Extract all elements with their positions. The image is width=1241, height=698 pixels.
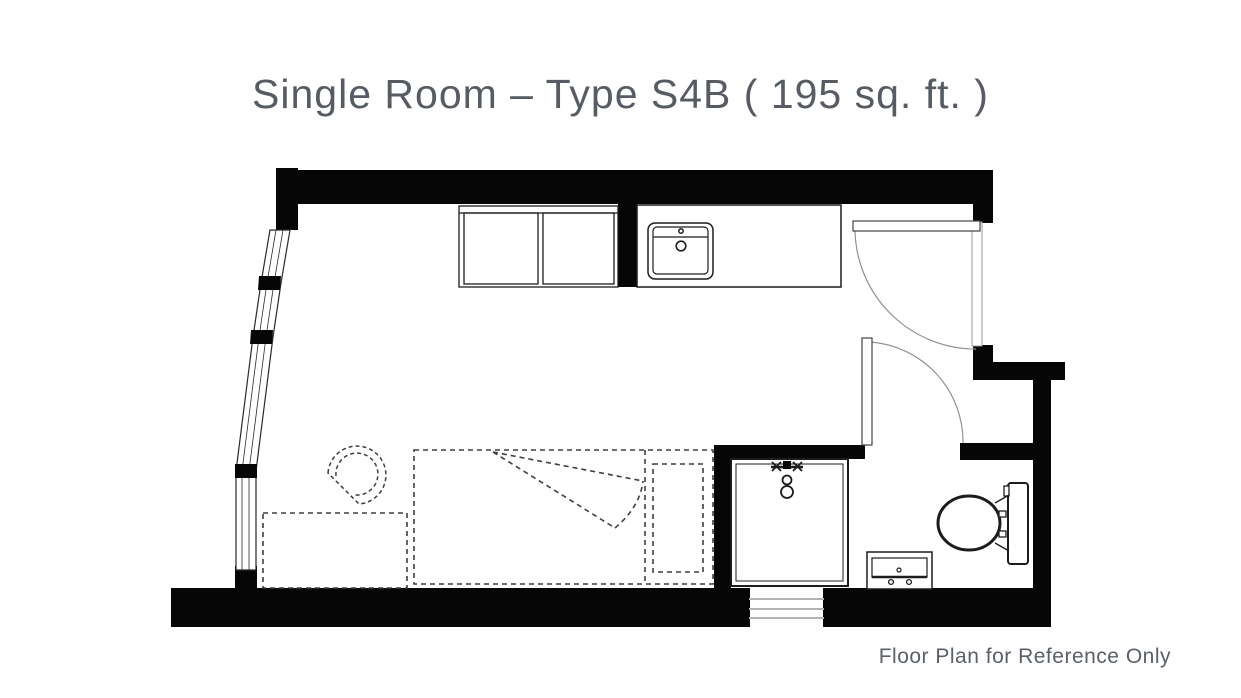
entry-steps [749, 599, 824, 618]
bathroom-wall-left [714, 459, 731, 590]
toilet-seat-line [995, 495, 1009, 503]
toilet-bowl [938, 496, 1000, 550]
fixtures [459, 205, 1028, 589]
shower [731, 459, 848, 586]
toilet-hinge [999, 511, 1006, 517]
toilet-tank [1008, 483, 1028, 564]
entry-door-frame [972, 222, 982, 346]
toilet-hinge [999, 531, 1006, 537]
wall-right-upper [973, 170, 993, 223]
window-mullion [258, 276, 281, 290]
entry-door-sill-block [973, 345, 993, 363]
footer-disclaimer: Floor Plan for Reference Only [879, 645, 1171, 669]
kitchen-counter [637, 205, 841, 287]
bathroom-door-swing-arc [870, 342, 963, 443]
blanket-fold [493, 452, 643, 528]
dashed-furniture [263, 446, 713, 588]
vanity [867, 552, 932, 589]
counter-top [637, 205, 841, 287]
wall-top-left-block [276, 168, 298, 230]
mixer-spout [783, 461, 791, 469]
shower-head-small [783, 476, 792, 485]
bathroom-wall-top-left [714, 445, 865, 459]
entry-door-leaf [853, 221, 980, 231]
wall-column-wardrobe [618, 203, 637, 287]
bed [414, 450, 713, 584]
bathroom-door-leaf [862, 338, 872, 445]
bed-outline [414, 450, 713, 584]
toilet [938, 483, 1028, 564]
door-arcs [855, 231, 976, 443]
toilet-flush-button [1004, 486, 1009, 496]
pillow [653, 464, 703, 572]
toilet-seat-line [995, 543, 1009, 551]
entry-door-swing-arc [855, 231, 976, 349]
wall-bottom-left [171, 588, 750, 627]
floor-plan [0, 0, 1241, 698]
wall-step-out-band [973, 362, 1065, 380]
page-canvas: Single Room – Type S4B ( 195 sq. ft. ) [0, 0, 1241, 698]
chair [328, 446, 386, 504]
wardrobe [459, 206, 618, 287]
chair-backrest-line [336, 453, 378, 495]
window-mullion [250, 330, 273, 344]
doors [853, 221, 982, 445]
bathroom-wall-top-right [960, 443, 1033, 460]
shower-drain [781, 486, 793, 498]
wall-top [277, 170, 993, 204]
wall-bottom-right [823, 588, 1051, 627]
window-mullion [235, 464, 257, 478]
desk [263, 513, 407, 588]
